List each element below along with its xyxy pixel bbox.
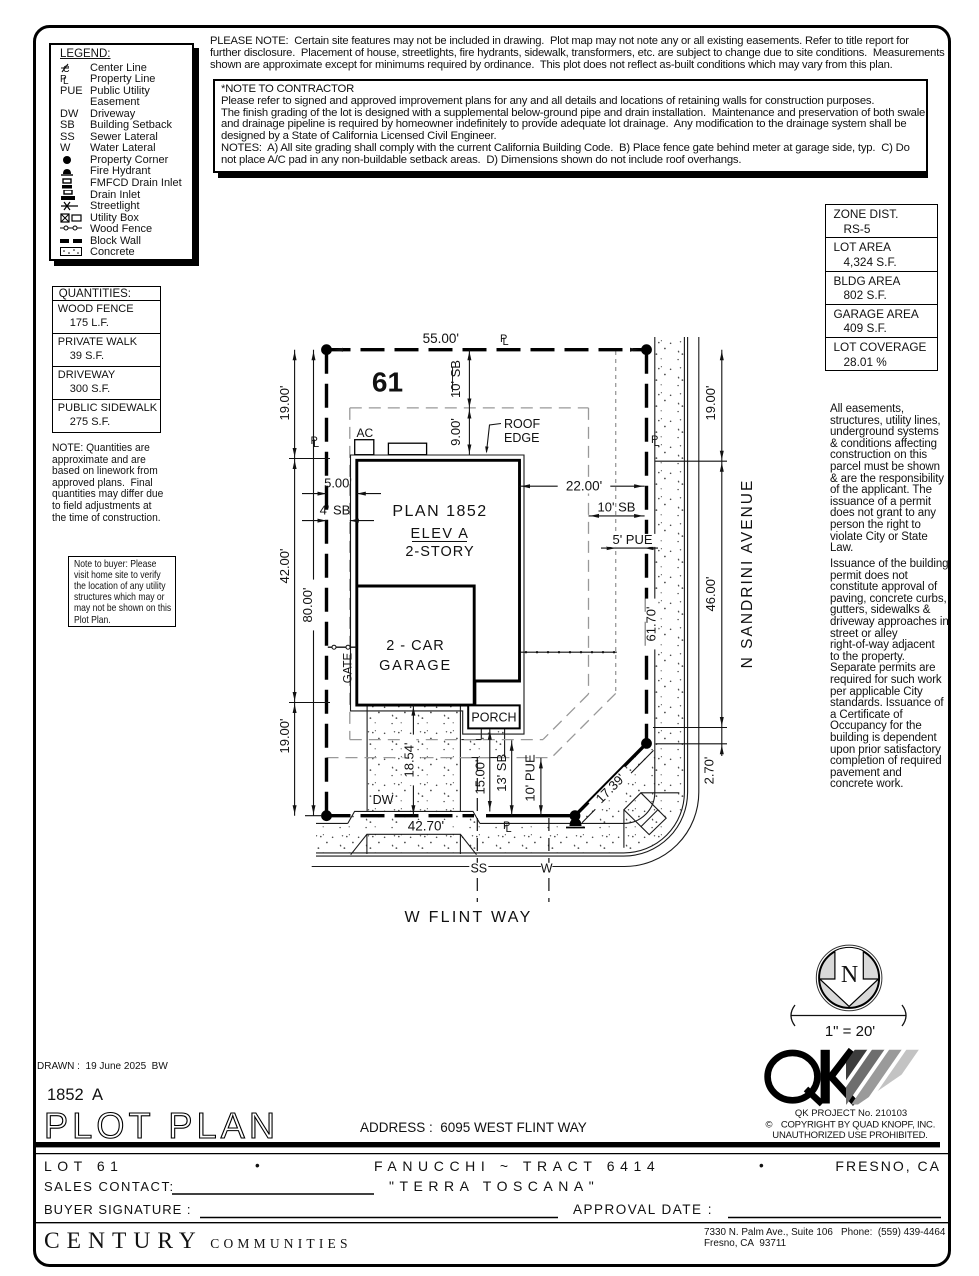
svg-text:N SANDRINI AVENUE: N SANDRINI AVENUE [739, 479, 756, 669]
svg-text:15.00': 15.00' [472, 759, 487, 794]
svg-text:42.00': 42.00' [277, 548, 292, 583]
svg-text:5' PUE: 5' PUE [612, 532, 652, 547]
svg-text:22.00': 22.00' [566, 479, 602, 494]
svg-text:SS: SS [470, 862, 487, 876]
svg-text:QK PROJECT No. 210103: QK PROJECT No. 210103 [795, 1108, 907, 1119]
svg-text:13' SB: 13' SB [494, 754, 509, 792]
svg-text:W: W [541, 862, 553, 876]
svg-text:ELEV A: ELEV A [411, 526, 470, 542]
svg-text:PLAN 1852: PLAN 1852 [392, 503, 487, 520]
svg-text:©: © [766, 1120, 773, 1131]
svg-text:L: L [503, 336, 509, 348]
svg-text:55.00': 55.00' [423, 331, 459, 346]
svg-text:19.00': 19.00' [277, 385, 292, 420]
svg-text:C: C [63, 64, 70, 74]
svg-text:N: N [841, 962, 858, 988]
svg-text:2 - CAR: 2 - CAR [386, 638, 445, 654]
svg-text:61.70': 61.70' [644, 606, 659, 641]
svg-text:18.54': 18.54' [401, 742, 416, 777]
svg-text:GARAGE: GARAGE [379, 658, 452, 674]
svg-text:L: L [654, 437, 660, 449]
svg-text:2.70': 2.70' [702, 757, 717, 785]
svg-text:80.00': 80.00' [300, 587, 315, 622]
svg-text:ROOF: ROOF [504, 417, 540, 431]
svg-text:9.00': 9.00' [448, 418, 463, 446]
svg-text:42.70': 42.70' [408, 819, 444, 834]
svg-text:GATE: GATE [343, 652, 355, 683]
svg-text:DW: DW [373, 793, 394, 807]
svg-text:1" = 20': 1" = 20' [825, 1023, 875, 1040]
svg-text:EDGE: EDGE [504, 431, 539, 445]
svg-text:L: L [506, 823, 512, 835]
svg-text:10' SB: 10' SB [448, 360, 463, 398]
svg-text:L: L [313, 438, 319, 450]
svg-text:61: 61 [372, 367, 403, 398]
svg-text:PORCH: PORCH [471, 711, 516, 725]
svg-text:46.00': 46.00' [703, 576, 718, 611]
svg-text:W FLINT WAY: W FLINT WAY [404, 909, 532, 926]
svg-text:AC: AC [357, 426, 374, 440]
svg-text:2-STORY: 2-STORY [405, 544, 474, 560]
svg-text:4' SB: 4' SB [320, 503, 351, 518]
svg-text:19.00': 19.00' [277, 718, 292, 753]
svg-text:19.00': 19.00' [703, 385, 718, 420]
svg-text:5.00': 5.00' [324, 476, 352, 491]
svg-text:10' PUE: 10' PUE [523, 754, 538, 802]
svg-text:COPYRIGHT BY QUAD KNOPF, INC.: COPYRIGHT BY QUAD KNOPF, INC. [781, 1120, 935, 1131]
svg-text:UNAUTHORIZED USE PROHIBITED.: UNAUTHORIZED USE PROHIBITED. [772, 1130, 927, 1141]
svg-text:10' SB: 10' SB [598, 500, 636, 515]
